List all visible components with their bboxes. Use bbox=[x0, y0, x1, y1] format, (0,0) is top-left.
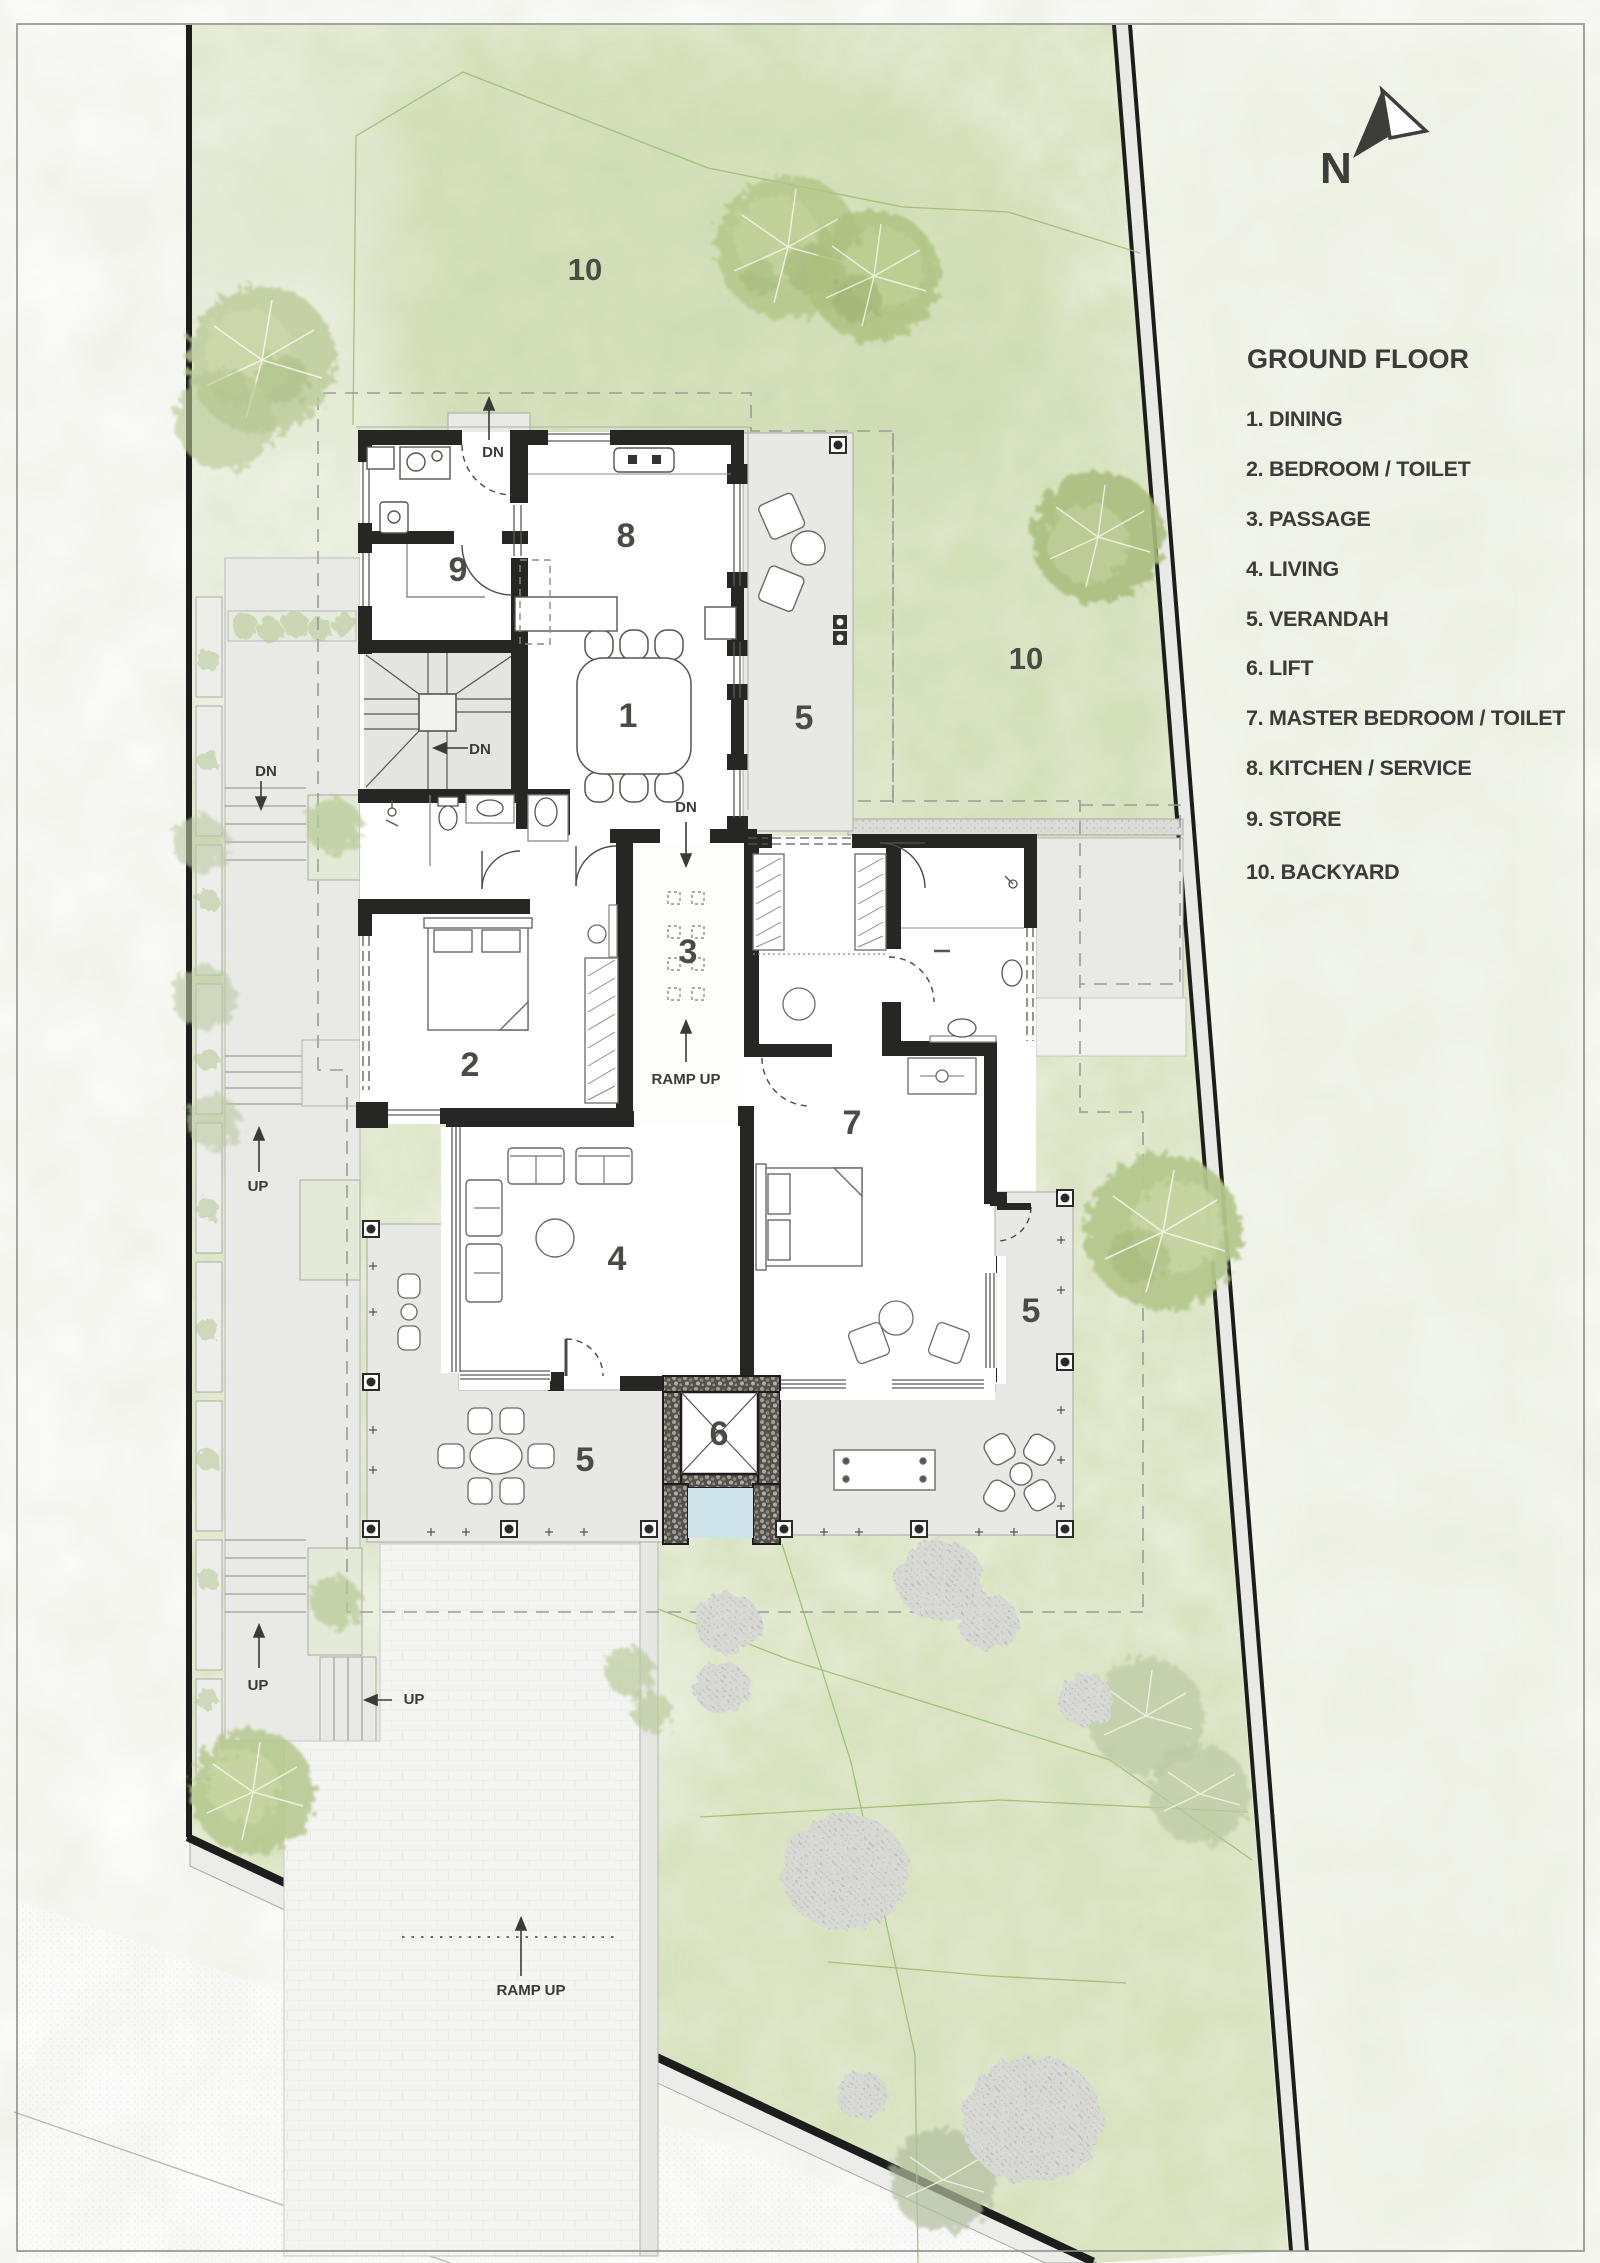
svg-text:8. KITCHEN / SERVICE: 8. KITCHEN / SERVICE bbox=[1246, 756, 1471, 780]
svg-text:4: 4 bbox=[608, 1240, 627, 1278]
svg-text:4. LIVING: 4. LIVING bbox=[1246, 557, 1339, 581]
svg-text:5: 5 bbox=[576, 1441, 595, 1479]
svg-text:UP: UP bbox=[248, 1178, 269, 1195]
svg-text:DN: DN bbox=[255, 763, 277, 780]
svg-text:3. PASSAGE: 3. PASSAGE bbox=[1246, 507, 1370, 531]
svg-text:GROUND FLOOR: GROUND FLOOR bbox=[1247, 344, 1469, 374]
svg-text:UP: UP bbox=[248, 1677, 269, 1694]
svg-text:10: 10 bbox=[568, 252, 602, 287]
svg-text:2: 2 bbox=[461, 1046, 480, 1084]
svg-text:3: 3 bbox=[679, 933, 698, 971]
svg-text:8: 8 bbox=[617, 517, 636, 555]
svg-text:9. STORE: 9. STORE bbox=[1246, 807, 1341, 831]
svg-text:10. BACKYARD: 10. BACKYARD bbox=[1246, 860, 1399, 884]
svg-text:7. MASTER BEDROOM / TOILET: 7. MASTER BEDROOM / TOILET bbox=[1246, 706, 1565, 730]
svg-text:5. VERANDAH: 5. VERANDAH bbox=[1246, 607, 1388, 631]
svg-text:DN: DN bbox=[482, 444, 504, 461]
svg-text:DN: DN bbox=[469, 741, 491, 758]
svg-text:6: 6 bbox=[710, 1415, 729, 1453]
svg-text:1. DINING: 1. DINING bbox=[1246, 407, 1342, 431]
svg-text:UP: UP bbox=[404, 1691, 425, 1708]
svg-text:DN: DN bbox=[675, 799, 697, 816]
svg-text:RAMP UP: RAMP UP bbox=[497, 1982, 566, 1999]
svg-text:RAMP UP: RAMP UP bbox=[652, 1071, 721, 1088]
svg-text:9: 9 bbox=[449, 551, 468, 589]
svg-text:2. BEDROOM / TOILET: 2. BEDROOM / TOILET bbox=[1246, 457, 1471, 481]
svg-text:6. LIFT: 6. LIFT bbox=[1246, 656, 1313, 680]
svg-text:N: N bbox=[1320, 144, 1352, 193]
svg-text:1: 1 bbox=[619, 697, 638, 735]
svg-text:10: 10 bbox=[1009, 641, 1043, 676]
svg-text:5: 5 bbox=[795, 699, 814, 737]
svg-text:7: 7 bbox=[843, 1104, 862, 1142]
svg-text:5: 5 bbox=[1022, 1292, 1041, 1330]
